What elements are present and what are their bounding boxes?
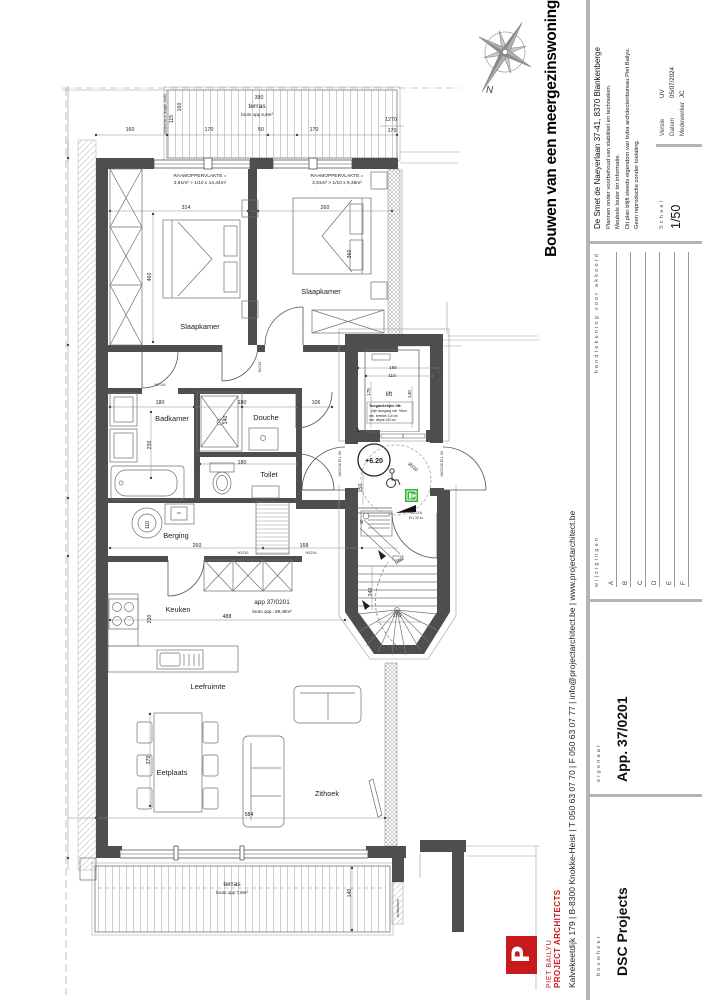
meta-fields: VersieUV Datum05/07/2024 MedewerkerJC (656, 67, 702, 147)
door-90216-stair: 90/216 (410, 511, 422, 515)
wheelchair-icon (387, 469, 401, 488)
label-level: +6.20 (365, 458, 383, 465)
revision-row-E: E (660, 252, 675, 587)
door-180236-left: 180/236 EI1 30 (338, 451, 342, 477)
label-keuken: Keuken (165, 605, 190, 614)
dim-488: 488 (223, 614, 232, 620)
lift-shaft (339, 329, 456, 659)
revision-letter: F (681, 579, 688, 587)
label-app-number: app 37/0201 (254, 599, 290, 606)
dim-170-a: 170 (205, 127, 214, 133)
versie-label: Versie (659, 98, 666, 136)
door-180236-right: 180/236 EI1 30 (440, 451, 444, 477)
revision-letter: D (652, 579, 659, 587)
revision-letter: B (623, 579, 630, 587)
label-terras-bottom: terras (223, 881, 241, 888)
dim-260-berging: 260 (193, 543, 202, 549)
label-terras-top-opp: bruto opp 6,8m² (241, 112, 273, 117)
label-app-opp: bruto opp.: 89,48m² (252, 609, 292, 614)
handtekening-label: handtekening voor akkoord (594, 252, 600, 373)
revision-row-D: D (646, 252, 661, 587)
label-slaapkamer-2: Slaapkamer (301, 287, 341, 296)
label-zithoek: Zithoek (315, 789, 340, 798)
door-90216-c: 90/216 (238, 551, 249, 555)
eigenaar-label: eigenaar (596, 610, 602, 782)
medewerker-value: JC (679, 90, 686, 98)
label-raam1-1: RAAMOPPERVLAKTE = (173, 173, 226, 179)
schaal-label: Schaal (659, 147, 665, 229)
floor-plan-drawing: N terrasbruto opp 6,8m²SlaapkamerSlaapka… (0, 0, 540, 1000)
dim-180-douche: 180 (238, 400, 247, 406)
dim-160-v: 160 (177, 103, 183, 112)
note-lift-title: Toegankelijke lift: (369, 403, 402, 408)
door-90216-d: 90/216 (306, 551, 317, 555)
dim-diam150: Ø150 (407, 461, 419, 473)
dim-106: 106 (312, 400, 321, 406)
revision-row-B: B (617, 252, 632, 587)
sheet-notes: Plannen onder voorbehoud van stabiliteit… (605, 8, 656, 229)
note-zichtscherm-top: zichtscherm hoogte 1m80 (163, 94, 167, 134)
title-block: PIET BAILYU PROJECT ARCHITECTS Kalvekeet… (540, 0, 706, 1000)
revision-letter: A (609, 579, 616, 587)
label-lift: lift (386, 391, 393, 398)
compass-icon: N (456, 8, 540, 107)
site-lines (62, 86, 540, 995)
revision-row-F: F (675, 252, 690, 587)
dim-160-lift: 160 (389, 365, 397, 370)
dim-15-lift: 15 (355, 427, 360, 432)
dim-175-lift: 175 (366, 388, 371, 396)
architect-logo: P (506, 936, 537, 974)
label-raam1-2: 3,91m² > 1/10 x 14,44m² (174, 180, 227, 186)
label-terras-bottom-opp: bruto opp 7,8m² (216, 890, 248, 895)
dim-390: 390 (255, 95, 264, 101)
label-leefruimte: Leefruimte (191, 682, 226, 691)
dim-1270: 1270 (385, 117, 397, 123)
dim-170-c: 170 (388, 128, 397, 134)
bouwheer-label: bouwheer (596, 805, 602, 976)
dim-314: 314 (182, 205, 191, 211)
dim-r60: R60 (394, 556, 404, 566)
revision-row-C: C (631, 252, 646, 587)
label-douche: Douche (253, 413, 278, 422)
label-badkamer: Badkamer (155, 414, 189, 423)
label-eetplaats: Eetplaats (157, 768, 188, 777)
dim-230-keuken: 230 (147, 615, 153, 624)
dim-115-v: 115 (169, 115, 175, 123)
dim-180-toilet: 180 (238, 460, 247, 466)
note-lift-3: min. diepte 140 cm (369, 418, 396, 422)
dim-40: 40 (359, 519, 364, 524)
label-slaapkamer-1: Slaapkamer (180, 322, 220, 331)
datum-label: Datum (669, 98, 676, 136)
furniture (80, 169, 387, 880)
dim-110-lift: 110 (388, 373, 396, 378)
info-cell: De Smet de Naeyerlaan 37-41, 8370 Blanke… (590, 0, 702, 244)
medewerker-label: Medewerker (679, 98, 686, 136)
dim-140-terras: 140 (347, 889, 353, 898)
label-cv: cv (177, 511, 181, 515)
dim-140-lift: 140 (407, 390, 412, 398)
dim-230-badkamer: 230 (147, 441, 153, 450)
dim-110: 110 (145, 521, 151, 529)
dim-460: 460 (147, 273, 153, 282)
datum-value: 05/07/2024 (669, 67, 676, 98)
door-90216-a: 90/216 (155, 383, 166, 387)
schaal-cell: Schaal 1/50 (656, 147, 702, 229)
eigenaar-value: App. 37/0201 (614, 610, 630, 782)
dim-50: 50 (258, 127, 264, 133)
revision-letter: C (638, 579, 645, 587)
project-title: Bouwen van een meergezinswoning (543, 0, 561, 257)
dim-584: 584 (245, 812, 254, 818)
dim-140-douche: 140 (223, 416, 229, 425)
dim-370: 370 (146, 756, 152, 765)
project-address: De Smet de Naeyerlaan 37-41, 8370 Blanke… (593, 8, 602, 229)
dim-240: 240 (368, 588, 374, 597)
dim-150-landing: 150 (358, 484, 364, 493)
dim-168: 168 (300, 543, 309, 549)
note-zichtscherm-bottom: zichtscherm (396, 899, 400, 918)
project-title-block: Bouwen van een meergezinswoning (540, 0, 586, 257)
bouwheer-cell: bouwheer DSC Projects (590, 797, 702, 1000)
label-raam2-2: 3,91m² > 1/10 x 9,36m² (312, 180, 362, 186)
schaal-value: 1/50 (669, 147, 683, 229)
terrace-top (164, 87, 400, 161)
dim-160-a: 160 (126, 127, 135, 133)
logo-letter: P (508, 941, 535, 968)
label-terras-top: terras (248, 103, 266, 110)
dim-360: 360 (347, 250, 353, 259)
dim-170-b: 170 (310, 127, 319, 133)
label-raam2-1: RAAMOPPERVLAKTE = (310, 173, 363, 179)
landing (358, 444, 431, 515)
eigenaar-cell: eigenaar App. 37/0201 (590, 602, 702, 797)
revisions-cell: wijzigingen handtekening voor akkoord AB… (590, 244, 702, 602)
exit-sign-icon (396, 489, 418, 513)
note-lift-1: vrije doorgang min. 90cm (371, 409, 407, 413)
revision-letter: E (667, 579, 674, 587)
dim-260-bed: 260 (321, 205, 330, 211)
label-toilet: Toilet (260, 470, 277, 479)
revision-row-A: A (602, 252, 617, 587)
dim-170-stair: 170 (393, 613, 402, 619)
door-ei130zs: EI1 30 zs (409, 516, 423, 520)
company-block: PIET BAILYU PROJECT ARCHITECTS Kalvekeet… (540, 257, 586, 1000)
revision-rows: ABCDEF (602, 252, 689, 587)
bouwheer-value: DSC Projects (614, 805, 630, 976)
company-subname: PROJECT ARCHITECTS (553, 265, 562, 988)
compass-north-label: N (486, 85, 494, 96)
wijzigingen-label: wijzigingen (594, 536, 600, 587)
terrace-bottom (92, 863, 393, 935)
company-name: PIET BAILYU (546, 265, 553, 988)
company-contact: Kalvekeetdijk 179 | B-8300 Knokke-Heist … (567, 265, 577, 988)
door-90216-b: 90/216 (258, 362, 262, 373)
architectural-sheet: N terrasbruto opp 6,8m²SlaapkamerSlaapka… (0, 0, 706, 1000)
dim-180-badkamer: 180 (156, 400, 165, 406)
label-berging: Berging (163, 531, 188, 540)
versie-value: UV (659, 89, 666, 98)
